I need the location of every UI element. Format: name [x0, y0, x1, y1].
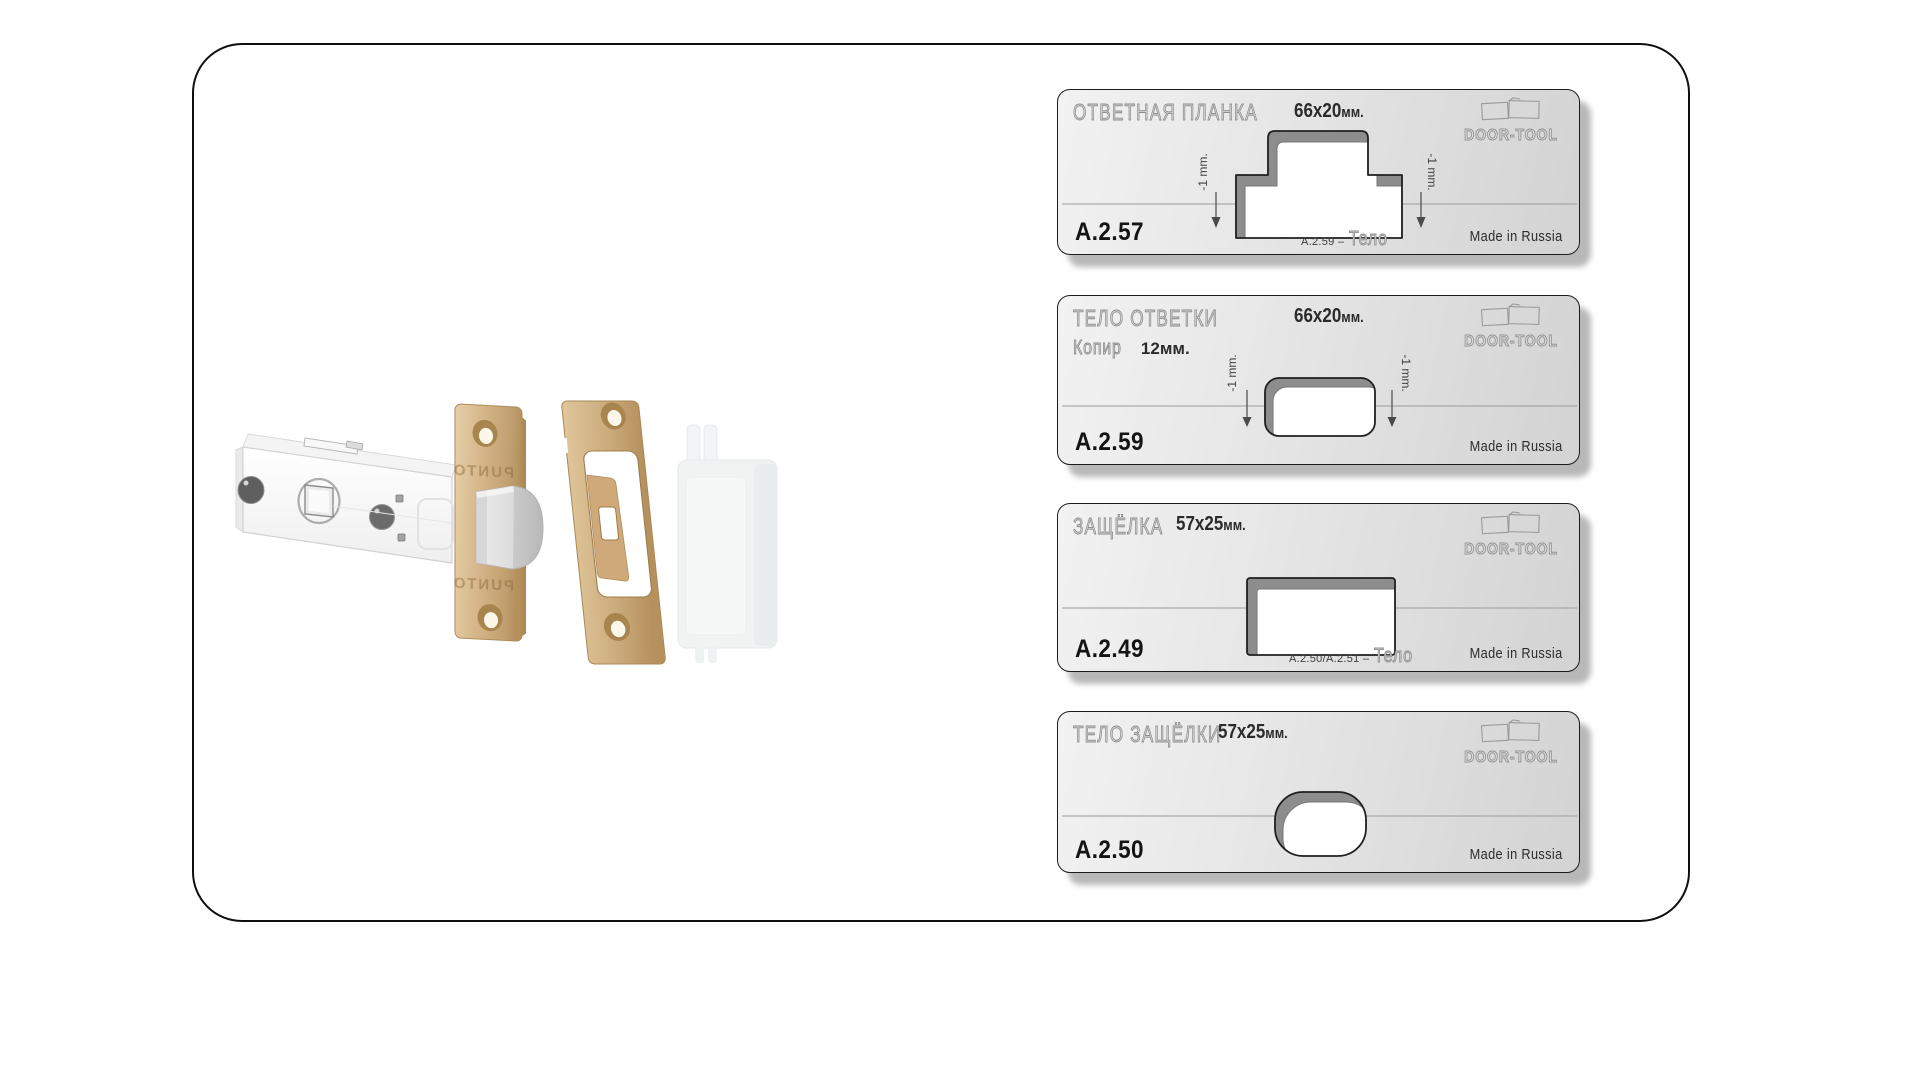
latch-bolt [476, 486, 543, 569]
related-template-note: A.2.59 – Тело [1301, 228, 1398, 251]
template-title: ОТВЕТНАЯ ПЛАНКА [1073, 99, 1258, 126]
door-tool-logo-icon [1479, 718, 1543, 744]
made-in-label: Made in Russia [1470, 229, 1563, 245]
template-id: A.2.49 [1075, 635, 1144, 664]
faceplate-engraving-bottom: PUNTO [452, 575, 514, 595]
tolerance-label-right: -1 mm. [1399, 348, 1413, 398]
template-id: A.2.57 [1075, 218, 1144, 247]
latch-body-end-hole [238, 477, 264, 504]
template-id: A.2.59 [1075, 428, 1144, 457]
door-tool-logo: DOOR-TOOL [1457, 718, 1565, 767]
door-tool-logo-icon [1479, 510, 1543, 536]
door-tool-logo: DOOR-TOOL [1457, 96, 1565, 145]
strike-plate [553, 401, 666, 664]
template-title: ТЕЛО ЗАЩЁЛКИ [1073, 721, 1221, 748]
door-tool-logo-icon [1479, 96, 1543, 122]
latch-dustbox-ghost [678, 425, 777, 663]
faceplate-engraving-top: PUNTO [452, 462, 514, 482]
template-size: 57x25мм. [1176, 513, 1246, 536]
template-title: ТЕЛО ОТВЕТКИ [1073, 305, 1218, 332]
template-size: 66x20мм. [1294, 100, 1364, 123]
tolerance-label-right: -1 mm. [1425, 147, 1439, 197]
made-in-label: Made in Russia [1470, 847, 1563, 863]
page: PUNTO PUNTO ОТВЕТНАЯ ПЛА [0, 0, 1920, 1080]
template-id: A.2.50 [1075, 836, 1144, 865]
door-tool-logo-text: DOOR-TOOL [1463, 541, 1558, 559]
related-template-note: A.2.50/A.2.51 – Тело [1289, 645, 1423, 668]
template-card-strike-body: ТЕЛО ОТВЕТКИ 66x20мм. Копир 12мм. -1 mm.… [1057, 295, 1580, 465]
door-tool-logo-text: DOOR-TOOL [1463, 127, 1558, 145]
door-tool-logo-icon [1479, 302, 1543, 328]
made-in-label: Made in Russia [1470, 439, 1563, 455]
template-card-strike-plate: ОТВЕТНАЯ ПЛАНКА 66x20мм. -1 mm. -1 mm. D… [1057, 89, 1580, 255]
template-card-latch: ЗАЩЁЛКА 57x25мм. DOOR-TOOL A.2.49 A.2.50… [1057, 503, 1580, 672]
door-tool-logo: DOOR-TOOL [1457, 510, 1565, 559]
latch-body-round-hole [370, 505, 395, 530]
template-title: ЗАЩЁЛКА [1073, 513, 1163, 540]
tolerance-label-left: -1 mm. [1196, 147, 1210, 197]
template-size: 57x25мм. [1218, 721, 1288, 744]
door-tool-logo-text: DOOR-TOOL [1463, 749, 1558, 767]
door-tool-logo: DOOR-TOOL [1457, 302, 1565, 351]
template-card-latch-body: ТЕЛО ЗАЩЁЛКИ 57x25мм. DOOR-TOOL A.2.50 M… [1057, 711, 1580, 873]
copier-spec: Копир 12мм. [1073, 337, 1190, 360]
latch-body [236, 434, 456, 563]
made-in-label: Made in Russia [1470, 646, 1563, 662]
latch-body-screw-top [396, 495, 403, 502]
latch-body-screw-bottom [398, 534, 405, 541]
latch-assembly-illustration: PUNTO PUNTO [230, 380, 790, 700]
template-size: 66x20мм. [1294, 305, 1364, 328]
tolerance-label-left: -1 mm. [1225, 348, 1239, 398]
door-tool-logo-text: DOOR-TOOL [1463, 333, 1558, 351]
